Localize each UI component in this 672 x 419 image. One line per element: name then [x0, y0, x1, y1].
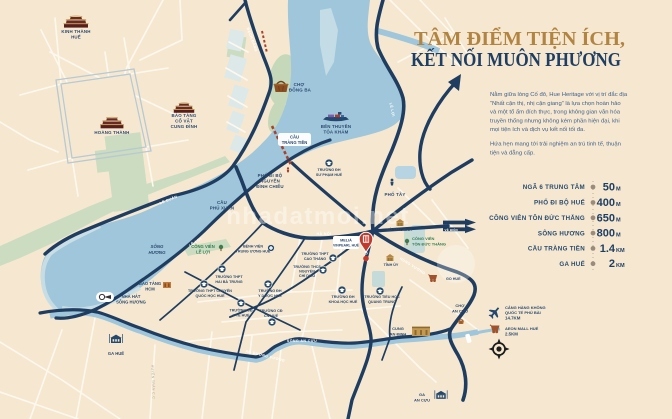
svg-text:Y DƯỢC HUẾ: Y DƯỢC HUẾ [258, 293, 282, 298]
svg-text:TRƯỜNG THPT CHUYÊN: TRƯỜNG THPT CHUYÊN [188, 288, 232, 293]
svg-text:PHỐ ĐI BỘ: PHỐ ĐI BỘ [258, 173, 283, 178]
svg-text:50: 50 [603, 182, 615, 194]
svg-text:Y TẾ HUẾ: Y TẾ HUẾ [233, 313, 250, 318]
svg-text:mọi tiện ích và dịch vụ kết nố: mọi tiện ích và dịch vụ kết nối tối đa. [490, 127, 585, 133]
svg-text:HÀ NỘI: HÀ NỘI [317, 231, 332, 236]
svg-text:CỔ VẬT: CỔ VẬT [175, 119, 193, 124]
svg-text:SÔNG AN CỰU: SÔNG AN CỰU [287, 338, 317, 343]
svg-text:TRƯỜNG CĐ: TRƯỜNG CĐ [229, 308, 252, 313]
svg-text:CN HUẾ: CN HUẾ [264, 313, 279, 318]
svg-text:M: M [616, 217, 621, 223]
svg-text:KM: KM [616, 248, 625, 254]
svg-text:PHÚ XUÂN: PHÚ XUÂN [210, 206, 235, 211]
svg-text:TRƯỜNG ĐH: TRƯỜNG ĐH [331, 294, 354, 299]
svg-text:TÂM ĐIỂM TIỆN ÍCH,: TÂM ĐIỂM TIỆN ÍCH, [414, 26, 625, 50]
svg-text:CUNG ĐÌNH: CUNG ĐÌNH [171, 124, 198, 129]
svg-text:800: 800 [597, 228, 615, 240]
svg-text:TRƯỜNG ĐH: TRƯỜNG ĐH [258, 288, 281, 293]
svg-text:LÊ LỢI: LÊ LỢI [196, 250, 210, 255]
svg-text:HAI BÀ TRƯNG: HAI BÀ TRƯNG [215, 279, 242, 284]
svg-text:M: M [616, 233, 621, 239]
svg-text:tiện và đẳng cấp.: tiện và đẳng cấp. [490, 149, 535, 156]
svg-text:TỈNH ỦY: TỈNH ỦY [384, 262, 399, 267]
svg-text:SƯ PHẠM HUẾ: SƯ PHẠM HUẾ [316, 172, 343, 177]
svg-text:QUANG TRUNG: QUANG TRUNG [368, 300, 396, 304]
svg-text:CAO THẮNG: CAO THẮNG [304, 256, 326, 261]
svg-text:CÔNG VIÊN: CÔNG VIÊN [412, 236, 435, 241]
svg-text:KINH THÀNH: KINH THÀNH [61, 29, 90, 34]
svg-text:GA: GA [419, 392, 425, 397]
svg-text:TRUNG ƯƠNG HUẾ: TRUNG ƯƠNG HUẾ [236, 249, 271, 254]
svg-text:TÔN ĐỨC THẮNG: TÔN ĐỨC THẮNG [412, 242, 446, 247]
svg-text:GO HUẾ: GO HUẾ [446, 276, 461, 281]
svg-text:TRƯỜNG ĐH: TRƯỜNG ĐH [317, 167, 340, 172]
svg-text:CÔNG VIÊN TÔN ĐỨC THẮNG: CÔNG VIÊN TÔN ĐỨC THẮNG [489, 214, 585, 222]
svg-text:VINPEARL HUẾ: VINPEARL HUẾ [333, 243, 360, 248]
svg-text:“Nhất cận thị, nhị cận giang”: “Nhất cận thị, nhị cận giang” là lựa chọ… [490, 101, 621, 107]
svg-text:CÔNG VIÊN: CÔNG VIÊN [191, 244, 215, 249]
svg-text:M: M [616, 187, 621, 193]
svg-text:CẦU: CẦU [290, 135, 299, 140]
svg-text:HOÀNG THÀNH: HOÀNG THÀNH [94, 130, 129, 135]
svg-text:400: 400 [597, 197, 615, 209]
svg-text:HCM: HCM [145, 287, 155, 292]
svg-text:CHỢ: CHỢ [455, 303, 465, 308]
svg-text:QUỐC TẾ PHÚ BÀI: QUỐC TẾ PHÚ BÀI [505, 310, 541, 315]
svg-text:và một tổ ấm đích thực, trong: và một tổ ấm đích thực, trong không gian… [490, 109, 621, 116]
svg-text:NGÃ 6 TRUNG TÂM: NGÃ 6 TRUNG TÂM [523, 184, 585, 191]
svg-text:truyền thống nhưng không kém p: truyền thống nhưng không kém phần hiện đ… [490, 118, 620, 124]
svg-text:650: 650 [597, 212, 615, 224]
svg-text:TRƯỜNG THCS: TRƯỜNG THCS [293, 264, 321, 269]
svg-text:AEON MALL HUẾ: AEON MALL HUẾ [505, 326, 539, 331]
svg-text:KẾT NỐI MUÔN PHƯƠNG: KẾT NỐI MUÔN PHƯƠNG [411, 47, 621, 71]
svg-text:GA HUẾ: GA HUẾ [108, 351, 124, 356]
svg-text:GA HUẾ: GA HUẾ [559, 261, 585, 268]
svg-text:CHÍ DIỂU: CHÍ DIỂU [299, 273, 316, 278]
svg-text:AN CỰU: AN CỰU [452, 309, 468, 314]
svg-text:ĐÌNH CHIỂU: ĐÌNH CHIỂU [256, 184, 284, 189]
svg-text:QUỐC HỌC HUẾ: QUỐC HỌC HUẾ [195, 293, 225, 298]
svg-text:TRƯỜNG THPT: TRƯỜNG THPT [301, 251, 329, 256]
svg-text:SÔNG HƯƠNG: SÔNG HƯƠNG [538, 229, 585, 237]
svg-text:CẦU TRÀNG TIỀN: CẦU TRÀNG TIỀN [528, 246, 585, 253]
svg-text:PHỐ ĐI BỘ HUẾ: PHỐ ĐI BỘ HUẾ [534, 199, 585, 207]
svg-text:SỞ TÀI CHÍNH: SỞ TÀI CHÍNH [386, 227, 412, 232]
svg-text:CHỢ: CHỢ [294, 82, 305, 87]
svg-text:ĐÔNG BA: ĐÔNG BA [289, 88, 312, 93]
svg-text:2: 2 [609, 258, 615, 270]
svg-text:MELIÁ: MELIÁ [340, 238, 352, 243]
svg-text:14.7KM: 14.7KM [505, 316, 521, 321]
svg-text:CUNG: CUNG [392, 326, 404, 331]
svg-text:TRƯỜNG CĐ: TRƯỜNG CĐ [259, 308, 282, 313]
svg-text:AN ĐỊNH: AN ĐỊNH [390, 332, 407, 337]
svg-text:Hứa hẹn mang tới trải nghiệm a: Hứa hẹn mang tới trải nghiệm an trú tinh… [490, 142, 621, 148]
svg-text:PHỐ TÂY: PHỐ TÂY [385, 192, 406, 197]
svg-text:TRƯỜNG THPT: TRƯỜNG THPT [215, 274, 243, 279]
svg-text:NHÀ HÁT: NHÀ HÁT [122, 294, 141, 299]
svg-text:BẢO TÀNG: BẢO TÀNG [139, 281, 161, 286]
svg-text:TRÀNG TIỀN: TRÀNG TIỀN [282, 140, 308, 145]
svg-text:TRƯỜNG TIỂU HỌC: TRƯỜNG TIỂU HỌC [364, 294, 400, 299]
svg-text:M: M [616, 202, 621, 208]
svg-text:NGUYỄN: NGUYỄN [260, 179, 280, 184]
svg-text:BẢO TÀNG: BẢO TÀNG [171, 113, 196, 118]
svg-text:BẾN THUYỀN: BẾN THUYỀN [321, 124, 352, 129]
svg-text:nhadatmoi.net: nhadatmoi.net [226, 203, 410, 230]
svg-text:2.5KM: 2.5KM [505, 332, 518, 337]
svg-text:Nằm giữa lòng Cố đô, Hue Herit: Nằm giữa lòng Cố đô, Hue Heritage với vị… [490, 91, 628, 98]
svg-text:SÔNG: SÔNG [151, 244, 165, 249]
svg-text:AN CỰU: AN CỰU [414, 398, 430, 403]
svg-text:CẦU: CẦU [217, 200, 227, 205]
svg-text:SÔNG HƯƠNG: SÔNG HƯƠNG [116, 300, 146, 305]
svg-text:TÒA KHÁM: TÒA KHÁM [323, 130, 348, 135]
svg-text:VỀ BIỂN: VỀ BIỂN [445, 227, 458, 232]
svg-text:NGUYỄN: NGUYỄN [299, 269, 315, 274]
svg-text:KHOA HỌC HUẾ: KHOA HỌC HUẾ [329, 299, 358, 304]
svg-text:1.4: 1.4 [600, 243, 616, 255]
svg-text:HUẾ: HUẾ [71, 35, 81, 40]
svg-text:BỆNH VIỆN: BỆNH VIỆN [243, 244, 263, 249]
svg-text:HƯƠNG: HƯƠNG [149, 250, 167, 255]
svg-text:KM: KM [616, 263, 625, 269]
